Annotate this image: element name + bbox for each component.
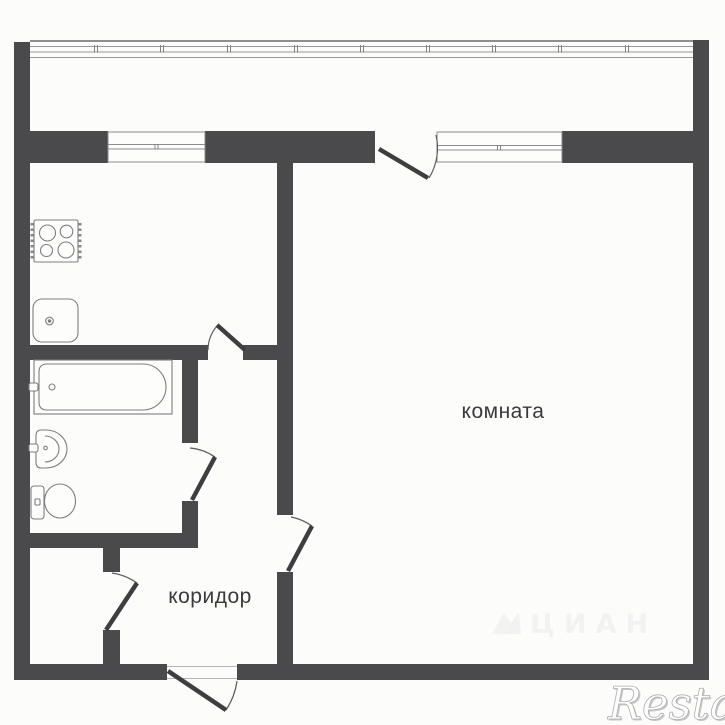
wall-segment-right	[693, 40, 709, 680]
room-label: комната	[462, 400, 545, 423]
room-window	[437, 132, 562, 162]
floor-plan-image: комната коридор ЦИАН Restate Restate	[0, 0, 725, 725]
wall-segment-room-lower	[277, 572, 293, 664]
wall-segment-bath-right-lower	[182, 501, 198, 534]
toilet-icon	[31, 484, 76, 519]
wall-segment-closet-upper	[103, 548, 120, 572]
wall-segment-closet-lower	[103, 630, 120, 664]
wall-segment-top-c	[562, 131, 694, 163]
wall-segment-bath-right-upper	[182, 360, 198, 443]
wall-segment-top-a	[30, 131, 108, 163]
corridor-label: коридор	[168, 585, 252, 608]
wall-segment-kitchen-bottom	[30, 345, 208, 360]
kitchen-window	[108, 132, 205, 162]
restate-watermark: Restate Restate	[607, 677, 725, 725]
wall-segment-room-upper	[277, 163, 293, 515]
wall-segment-top-b	[205, 131, 375, 163]
restate-watermark-text: Restate	[607, 677, 725, 725]
floor-plan-canvas: комната коридор ЦИАН Restate Restate	[0, 0, 725, 725]
wall-segment-bath-bottom	[30, 533, 198, 548]
wall-segment-kitchen-stub	[243, 345, 277, 360]
wall-segment-left	[14, 42, 30, 680]
kitchen-sink-icon	[33, 299, 78, 342]
cian-watermark-text: ЦИАН	[530, 609, 657, 640]
stove-icon	[32, 220, 80, 262]
wall-segment-bottom-left	[14, 664, 167, 680]
bathtub-icon	[29, 360, 172, 414]
